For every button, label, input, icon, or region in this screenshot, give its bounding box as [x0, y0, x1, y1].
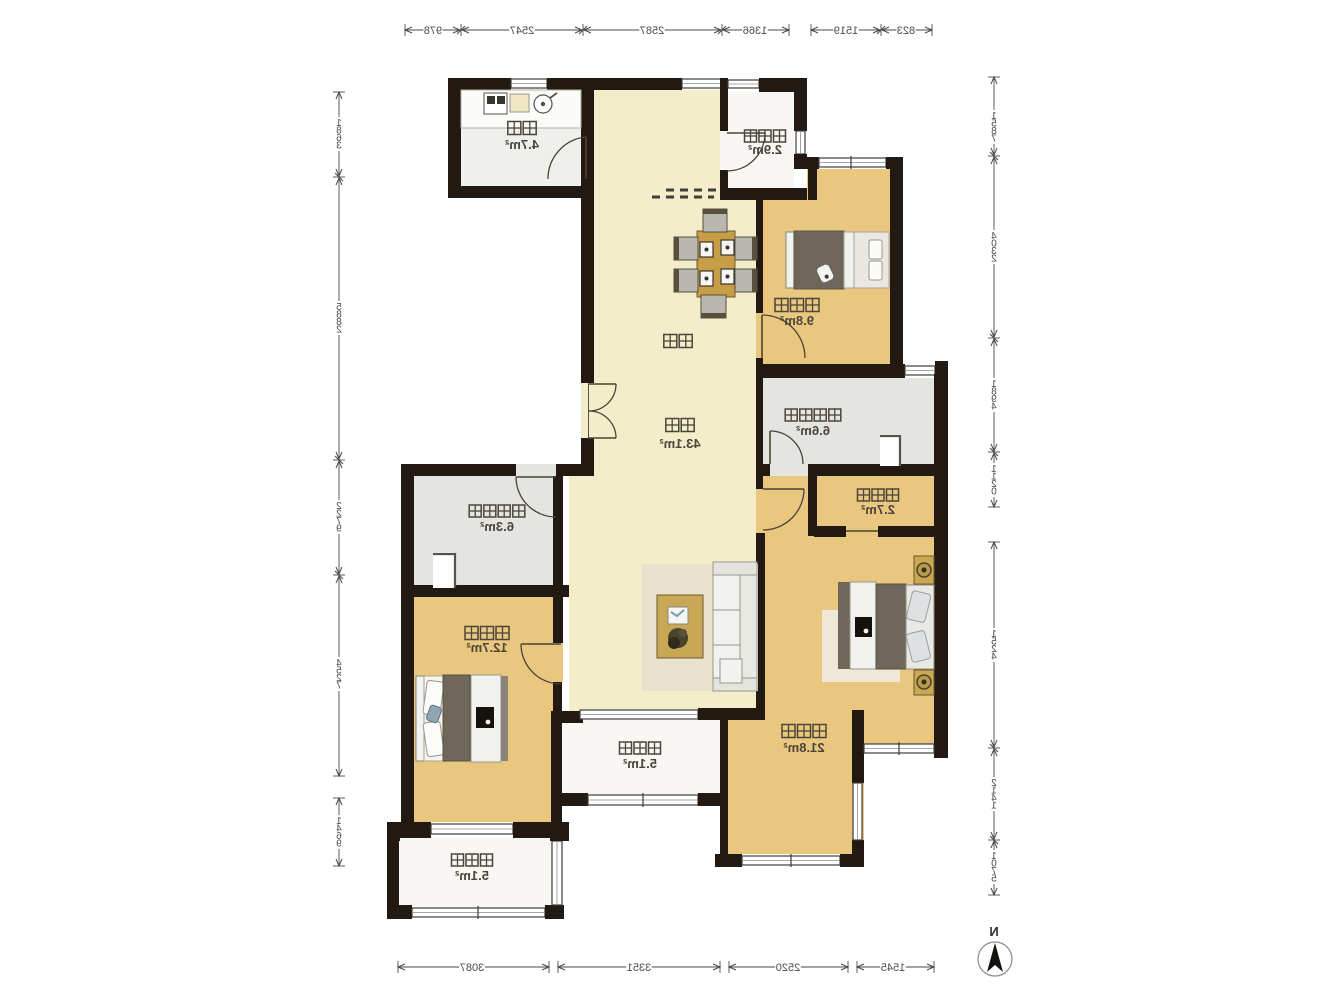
svg-text:21.8m²: 21.8m² [783, 740, 825, 755]
svg-text:6.6m²: 6.6m² [795, 423, 830, 438]
svg-text:9: 9 [336, 523, 342, 534]
svg-text:2520: 2520 [776, 962, 800, 974]
svg-text:6.3m²: 6.3m² [479, 519, 514, 534]
svg-text:4: 4 [991, 651, 997, 662]
svg-text:5.1m²: 5.1m² [454, 868, 489, 883]
svg-text:1545: 1545 [881, 962, 905, 974]
svg-text:12.7m²: 12.7m² [466, 640, 508, 655]
svg-text:2: 2 [336, 324, 342, 335]
svg-text:5.1m²: 5.1m² [622, 756, 657, 771]
svg-text:9.8m²: 9.8m² [779, 313, 814, 328]
svg-text:978: 978 [424, 25, 442, 37]
svg-text:0: 0 [991, 486, 997, 497]
svg-text:9: 9 [336, 838, 342, 849]
svg-text:3087: 3087 [460, 962, 484, 974]
svg-text:7: 7 [991, 133, 997, 144]
svg-text:2.9m²: 2.9m² [747, 142, 782, 157]
svg-text:823: 823 [897, 25, 915, 37]
svg-text:2547: 2547 [510, 25, 534, 37]
svg-text:3: 3 [336, 140, 342, 151]
svg-text:1366: 1366 [743, 25, 767, 37]
svg-text:5: 5 [991, 873, 997, 884]
svg-text:1519: 1519 [834, 25, 858, 37]
svg-text:43.1m²: 43.1m² [659, 436, 701, 451]
svg-text:2587: 2587 [640, 25, 664, 37]
svg-text:3351: 3351 [627, 962, 651, 974]
svg-text:2.7m²: 2.7m² [860, 502, 895, 517]
svg-text:2: 2 [991, 253, 997, 264]
svg-text:1: 1 [991, 800, 997, 811]
svg-text:4.7m²: 4.7m² [504, 137, 539, 152]
svg-text:N: N [989, 924, 998, 939]
svg-text:7: 7 [336, 680, 342, 691]
svg-text:4: 4 [991, 401, 997, 412]
